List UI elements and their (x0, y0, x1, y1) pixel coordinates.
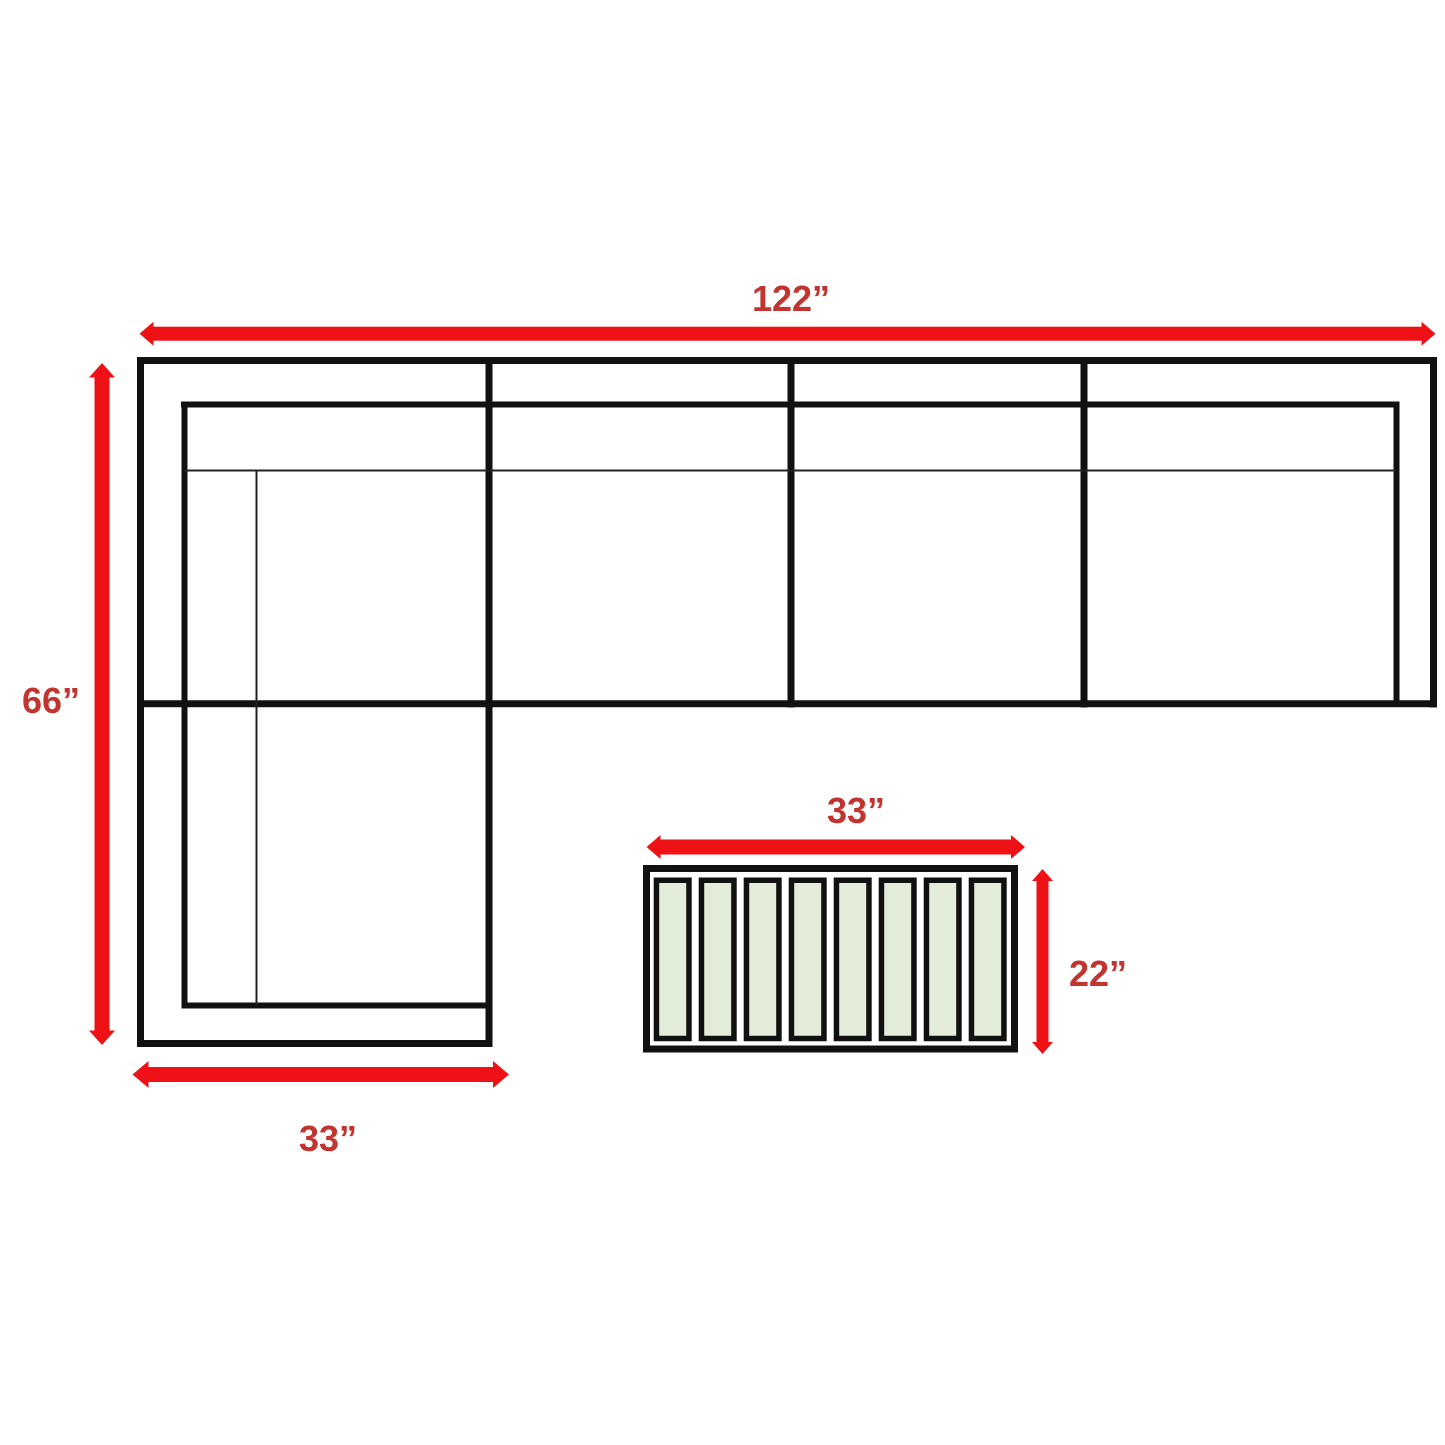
svg-text:22”: 22” (1069, 953, 1127, 994)
svg-text:33”: 33” (827, 790, 885, 831)
svg-text:33”: 33” (299, 1118, 357, 1159)
svg-text:66”: 66” (22, 680, 80, 721)
svg-text:122”: 122” (752, 278, 830, 319)
